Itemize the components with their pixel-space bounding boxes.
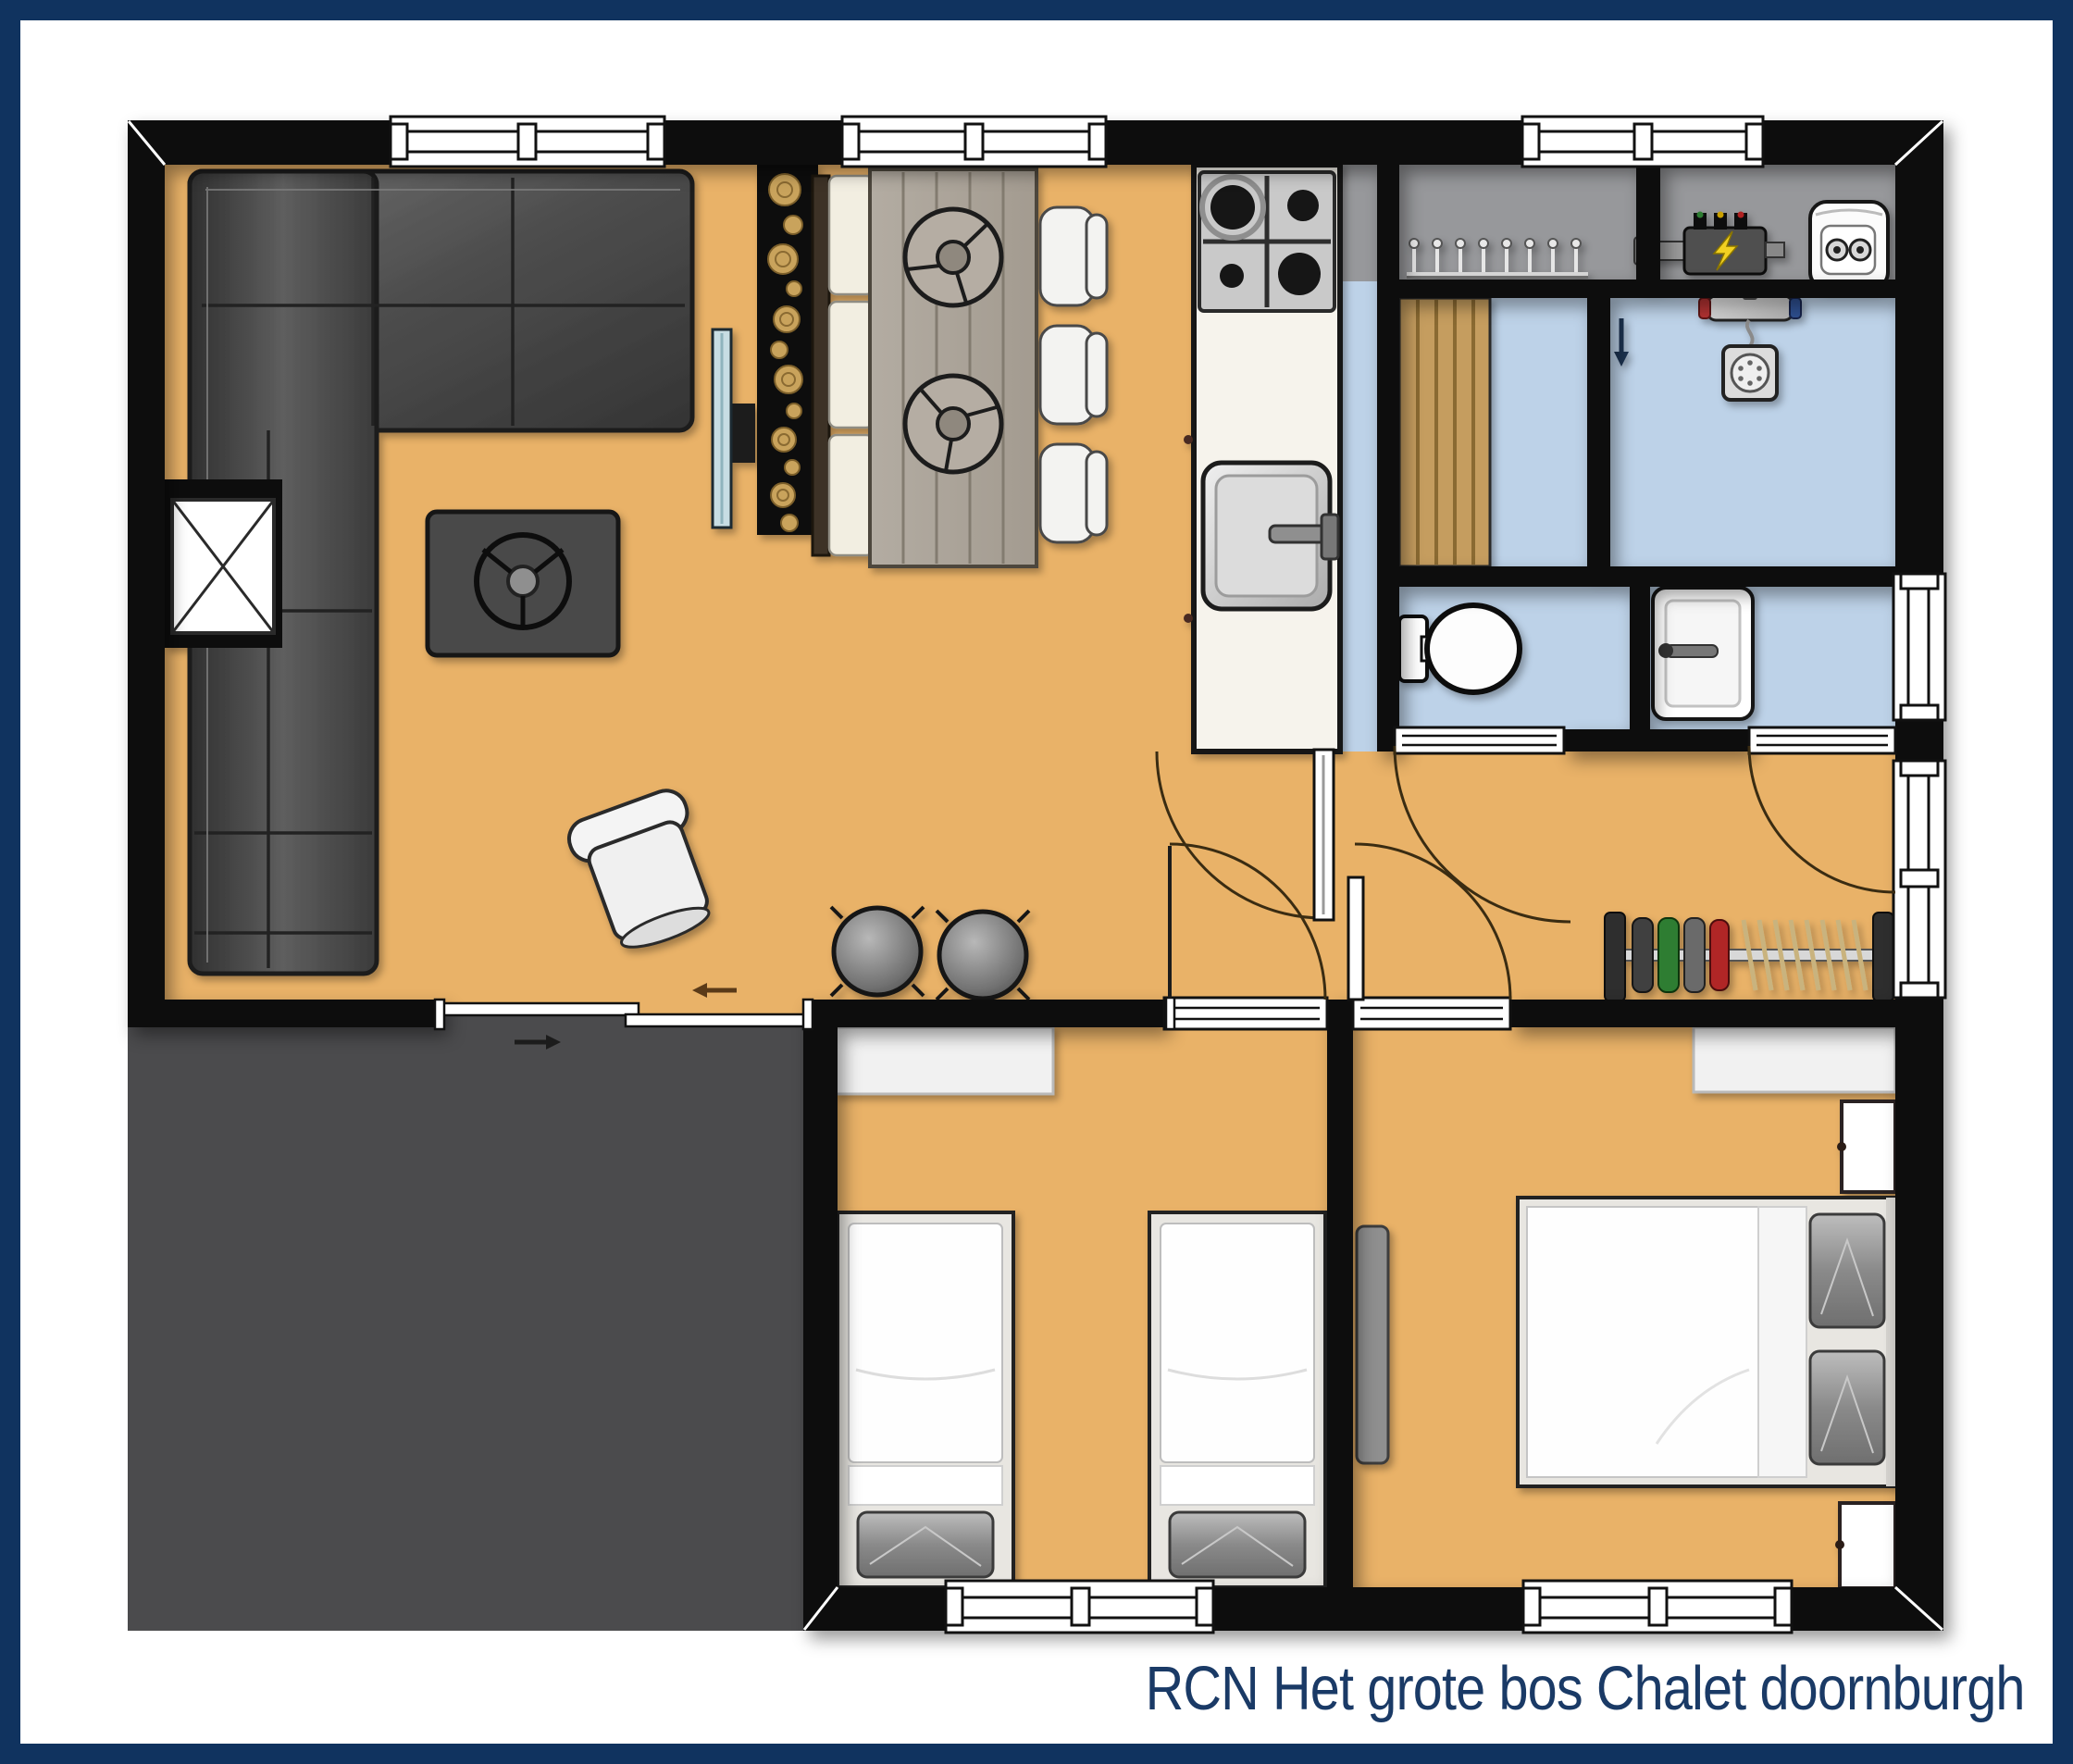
wardrobe-door-panel	[1357, 1226, 1388, 1463]
stool	[831, 907, 924, 996]
washbasin-icon	[1653, 588, 1753, 719]
table-mandala	[905, 376, 1001, 472]
wall-shower-toilet	[1377, 566, 1895, 587]
terrace-floor	[128, 1013, 803, 1631]
wall-toilet-washbasin	[1630, 587, 1650, 729]
wall-utility-divider	[1636, 165, 1660, 280]
nightstand	[1837, 1101, 1895, 1192]
kitchen-counter	[1184, 165, 1340, 752]
wall-kitchen-utility	[1377, 165, 1399, 752]
wall-hall-bedroom	[1510, 1000, 1895, 1027]
wall-toilet-hall	[1377, 729, 1395, 752]
boiler-icon	[1810, 202, 1888, 289]
window-symbol	[1893, 574, 1945, 720]
wall-toilet-hall	[1564, 729, 1749, 752]
wall-terrace-bedroom	[803, 1000, 838, 1631]
wall-left	[128, 120, 165, 1027]
dining-table	[870, 169, 1036, 566]
toilet-icon	[1399, 605, 1520, 692]
single-bed	[1149, 1212, 1325, 1587]
utility-room-hooks-floor	[1399, 165, 1636, 281]
window-symbol	[1523, 1581, 1792, 1633]
shelf	[836, 1027, 1053, 1094]
dining-chair	[1040, 444, 1107, 542]
faucet-icon	[1270, 526, 1329, 542]
faucet-icon	[1666, 645, 1718, 657]
shelf	[1694, 1027, 1895, 1092]
gas-hob-icon	[1199, 172, 1334, 311]
wood-stove-icon	[428, 512, 618, 655]
kitchen-sink-icon	[1203, 463, 1338, 609]
window-symbol	[842, 117, 1106, 167]
side-table-x-icon	[165, 479, 282, 648]
dining-bench	[813, 176, 874, 555]
table-mandala	[905, 209, 1001, 305]
dining-chair	[1040, 326, 1107, 424]
wall-living-terrace	[128, 1000, 442, 1027]
utility-strip-floor	[1340, 165, 1377, 281]
passage-strip-floor	[1340, 281, 1377, 752]
wall-hall-bedroom	[809, 1000, 1164, 1027]
log-wall-decor	[757, 165, 818, 535]
wall-utility-row	[1377, 280, 1895, 298]
double-bed	[1518, 1198, 1895, 1486]
window-symbol	[1893, 761, 1945, 998]
single-bed	[838, 1212, 1013, 1587]
wood-slats	[1399, 298, 1490, 566]
window-symbol	[1522, 117, 1763, 167]
window-symbol	[946, 1581, 1213, 1633]
plan-title: RCN Het grote bos Chalet doornburgh	[1146, 1653, 2025, 1724]
dining-chair	[1040, 207, 1107, 305]
wall-bedroom-divider	[1327, 1000, 1353, 1587]
wall-storage-shower	[1587, 298, 1610, 566]
stool	[937, 911, 1029, 1000]
nightstand	[1835, 1503, 1895, 1588]
floor-plan	[0, 0, 2073, 1764]
window-symbol	[391, 117, 664, 167]
